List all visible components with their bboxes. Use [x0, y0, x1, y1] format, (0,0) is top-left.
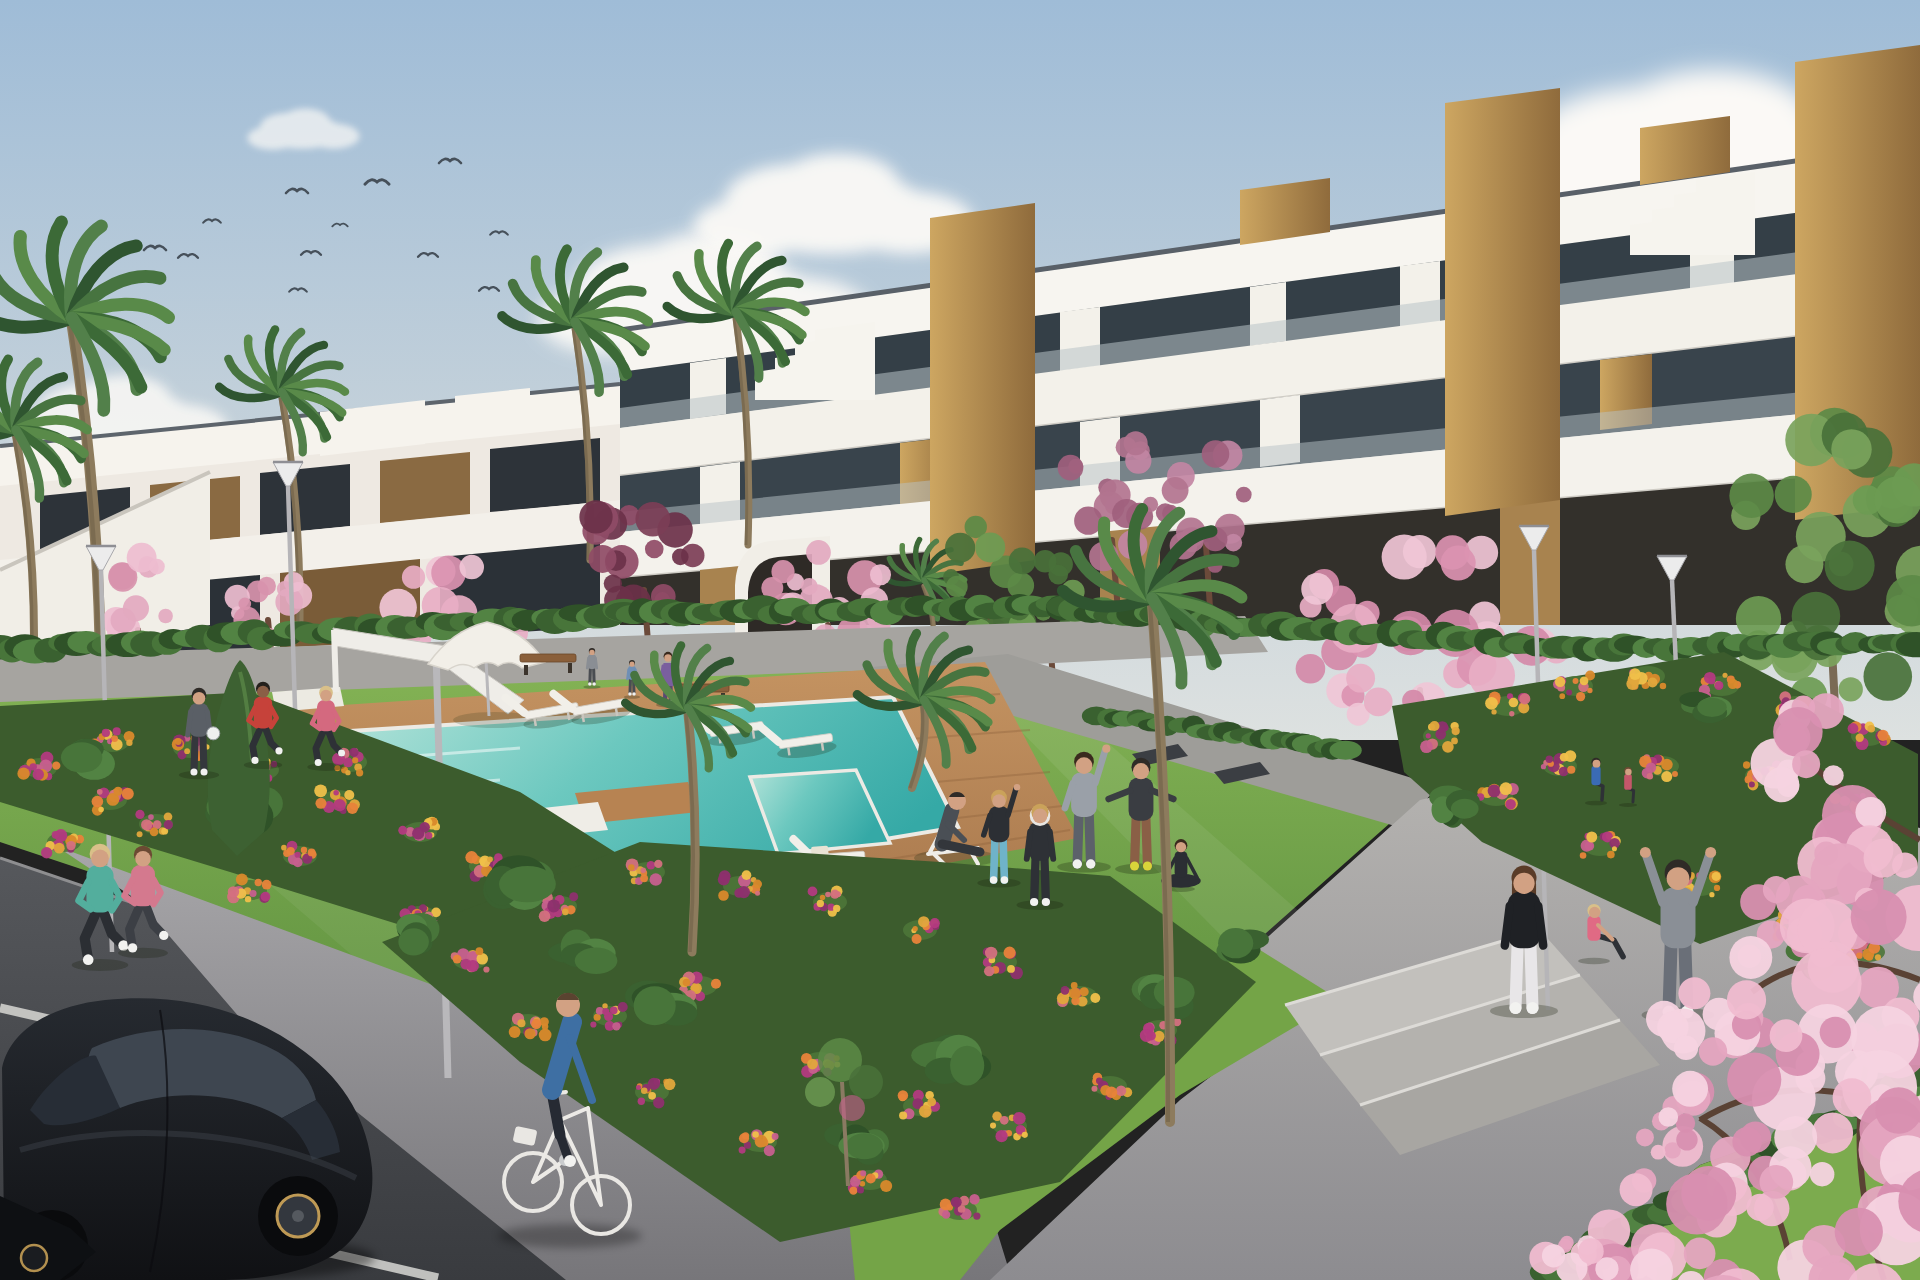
left-window: [490, 438, 600, 512]
scene-render: [0, 0, 1920, 1280]
rider-shoe: [564, 1155, 576, 1167]
render-stage: [0, 0, 1920, 1280]
leaves: [849, 1065, 883, 1099]
left-window: [260, 464, 350, 535]
left-parapet-2: [455, 388, 530, 438]
leaves: [805, 1077, 835, 1107]
blooms: [839, 1095, 865, 1121]
car-rim: [21, 1245, 47, 1271]
lamp-support: [334, 630, 336, 692]
wood-tower: [1445, 88, 1560, 516]
left-wood-panel: [380, 452, 470, 523]
ground-wood-pier: [1500, 488, 1560, 625]
car-hub: [292, 1210, 304, 1222]
